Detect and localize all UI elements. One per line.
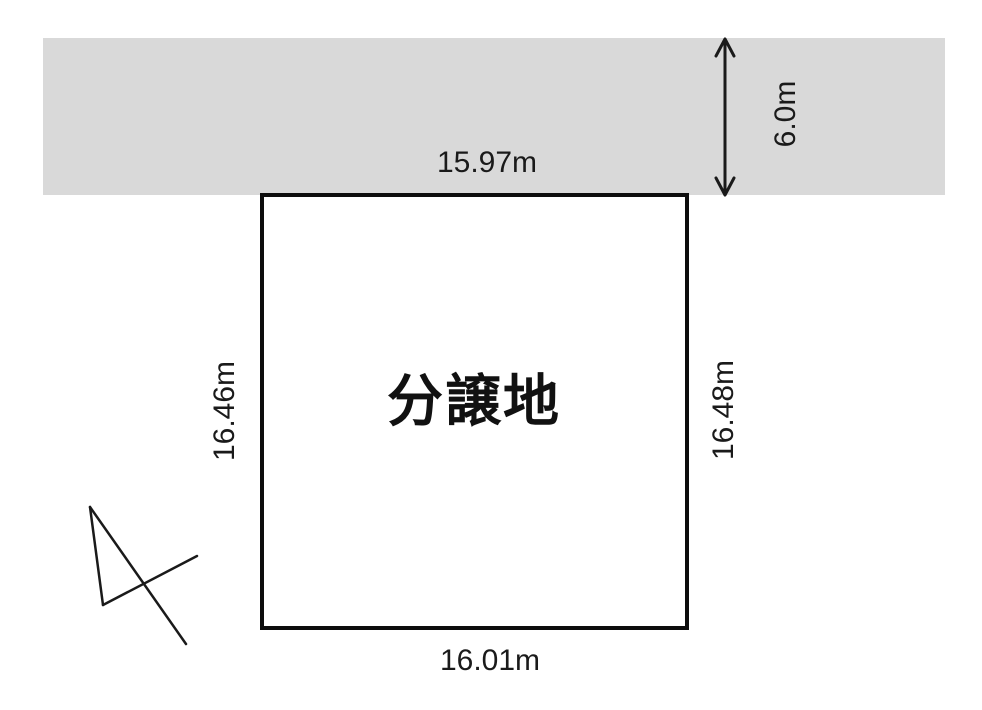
dimension-top-label: 15.97m	[437, 148, 537, 178]
road-width-label: 6.0m	[771, 81, 801, 148]
north-arrow-icon	[90, 507, 197, 644]
dimension-right-label: 16.48m	[709, 360, 739, 460]
dimension-bottom-label: 16.01m	[440, 646, 540, 676]
plot-name-label: 分譲地	[387, 357, 561, 438]
dimension-left-label: 16.46m	[210, 361, 240, 461]
diagram-canvas: 15.97m 16.46m 16.48m 16.01m 6.0m 分譲地	[0, 0, 982, 710]
